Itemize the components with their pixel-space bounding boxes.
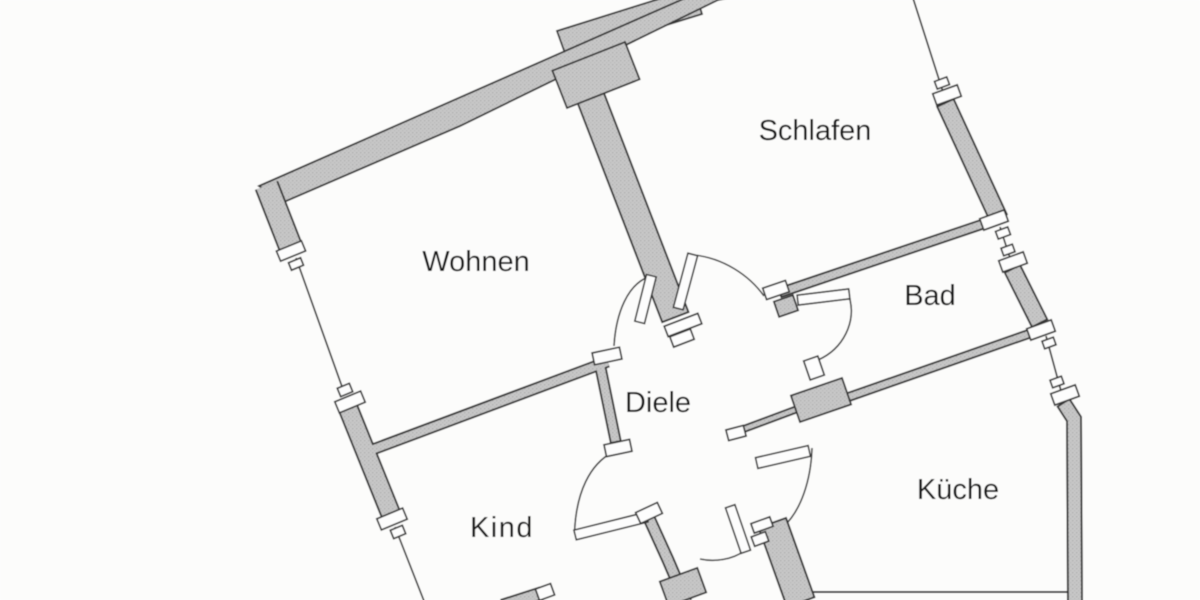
- svg-text:Wohnen: Wohnen: [422, 246, 530, 278]
- svg-text:Kind: Kind: [470, 512, 534, 544]
- svg-text:Diele: Diele: [625, 387, 691, 419]
- svg-text:Schlafen: Schlafen: [759, 115, 872, 147]
- svg-text:Bad: Bad: [904, 280, 956, 312]
- svg-text:Küche: Küche: [917, 474, 999, 506]
